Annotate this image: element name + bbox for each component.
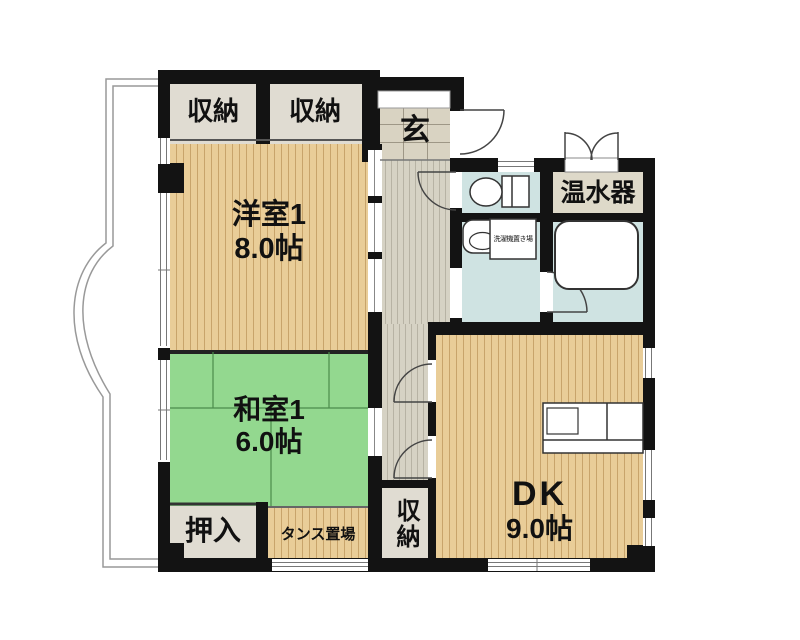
front-door: [460, 110, 504, 154]
label-water-heater: 温水器: [551, 176, 645, 210]
bathtub-icon: [555, 221, 638, 289]
balcony-outline: [74, 79, 158, 567]
dk-door-upper: [394, 364, 432, 402]
kitchen-counter-icon: [543, 403, 643, 453]
floor-plan: 収納 収納 玄 温水器 洋室1 8.0帖 和室1 6.0帖 押入 タンス置場 収…: [0, 0, 800, 640]
label-dk-name: DK: [436, 474, 643, 514]
label-dk-size: 9.0帖: [436, 512, 643, 546]
label-tansu-space: タンス置場: [268, 524, 368, 544]
label-oshiire: 押入: [170, 512, 256, 550]
fixtures: [463, 176, 643, 453]
label-closet-top-left: 収納: [170, 95, 256, 127]
label-japanese-room-size: 6.0帖: [170, 426, 368, 458]
water-heater-double-door: [565, 132, 618, 160]
dk-door-lower: [394, 440, 432, 478]
double-door-sill: [565, 158, 618, 172]
label-closet-top-right: 収納: [268, 95, 362, 127]
label-western-room-name: 洋室1: [170, 198, 368, 232]
label-japanese-room-name: 和室1: [170, 394, 368, 426]
entrance-porch-step: [378, 91, 450, 108]
label-closet-bottom: 収納: [382, 492, 428, 556]
toilet-icon: [470, 176, 529, 207]
label-entrance: 玄: [380, 110, 450, 152]
label-laundry-space: 洗濯機置き場: [491, 230, 535, 248]
label-western-room-size: 8.0帖: [170, 232, 368, 266]
